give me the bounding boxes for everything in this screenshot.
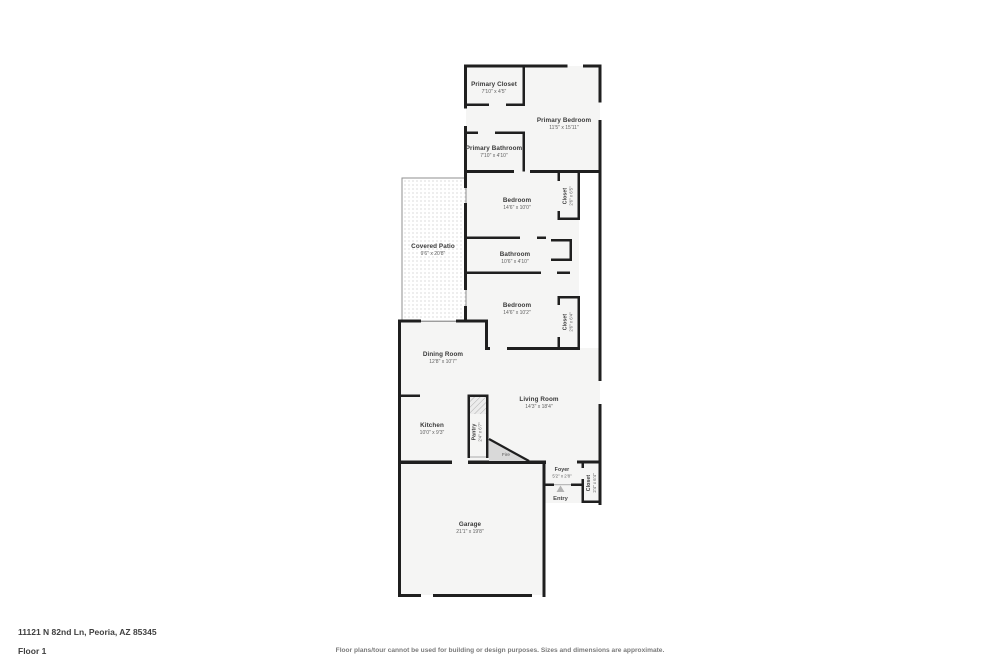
svg-text:11'5" x 15'11": 11'5" x 15'11" [549, 125, 579, 131]
svg-text:10'6" x 4'10": 10'6" x 4'10" [501, 259, 529, 265]
svg-text:12'8" x 10'7": 12'8" x 10'7" [429, 359, 457, 365]
fireplace-label: Fire [502, 452, 510, 457]
floor-plan-svg: Fire Entry Primary Closet 7'10" x 4'5" P… [0, 0, 1000, 667]
svg-text:10'0" x 9'3": 10'0" x 9'3" [420, 430, 445, 436]
svg-text:Primary Bathroom: Primary Bathroom [466, 145, 523, 152]
svg-text:14'6" x 10'2": 14'6" x 10'2" [503, 310, 531, 316]
svg-text:Covered Patio: Covered Patio [411, 243, 455, 250]
disclaimer-text: Floor plans/tour cannot be used for buil… [0, 647, 1000, 654]
room-label-pantry: Pantry 2'4" x 6'7" [472, 422, 483, 442]
svg-text:Garage: Garage [459, 521, 482, 528]
room-label-closet-2: Closet 2'6" x 6'4" [563, 312, 574, 332]
svg-text:Primary Bedroom: Primary Bedroom [537, 117, 592, 124]
svg-text:Primary Closet: Primary Closet [471, 81, 518, 88]
svg-text:Foyer: Foyer [555, 467, 570, 473]
pantry-hatch [470, 397, 486, 414]
svg-text:Bedroom: Bedroom [503, 197, 532, 204]
property-address: 11121 N 82nd Ln, Peoria, AZ 85345 [18, 627, 157, 637]
entry-label: Entry [553, 496, 569, 502]
svg-text:Bathroom: Bathroom [500, 251, 531, 258]
svg-text:Living Room: Living Room [519, 396, 559, 403]
svg-text:2'6" x 6'5": 2'6" x 6'5" [569, 186, 574, 206]
svg-text:2'6" x 6'4": 2'6" x 6'4" [569, 312, 574, 332]
svg-text:9'6" x 20'8": 9'6" x 20'8" [421, 251, 446, 257]
room-label-foyer: Foyer 5'2" x 2'8" [552, 467, 572, 479]
svg-text:14'3" x 18'4": 14'3" x 18'4" [525, 404, 553, 410]
room-label-closet-1: Closet 2'6" x 6'5" [563, 186, 574, 206]
svg-text:Dining Room: Dining Room [423, 351, 464, 358]
svg-text:2'4" x 6'7": 2'4" x 6'7" [478, 422, 483, 442]
svg-text:2'4" x 6'4": 2'4" x 6'4" [592, 473, 597, 493]
svg-text:21'1" x 19'8": 21'1" x 19'8" [456, 529, 484, 535]
svg-text:5'2" x 2'8": 5'2" x 2'8" [552, 474, 572, 479]
svg-text:Bedroom: Bedroom [503, 302, 532, 309]
svg-text:7'10" x 4'5": 7'10" x 4'5" [482, 89, 507, 95]
svg-text:Kitchen: Kitchen [420, 422, 444, 429]
room-label-foyer-closet: Closet 2'4" x 6'4" [586, 473, 597, 493]
svg-text:7'10" x 4'10": 7'10" x 4'10" [480, 153, 508, 159]
svg-text:14'6" x 10'0": 14'6" x 10'0" [503, 205, 531, 211]
